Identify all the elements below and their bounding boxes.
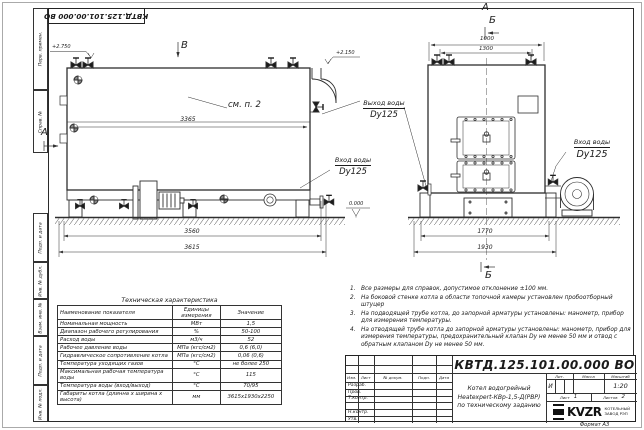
cell-units: °С xyxy=(173,382,221,390)
dim-3615: 3615 xyxy=(184,244,199,251)
view-label-b-bottom: Б xyxy=(485,270,492,281)
header-units: Единицы измерения xyxy=(173,306,221,320)
outlet-water-dn: Dy125 xyxy=(352,110,416,120)
margin-box-inv-podl: Инв. № подл. xyxy=(33,385,48,422)
header-name: Наименование показателя xyxy=(58,306,173,320)
cell-units: % xyxy=(173,328,221,336)
note-text: Все размеры для справок, допустимое откл… xyxy=(361,286,632,294)
sheets-cell: Листов 2 xyxy=(591,393,637,401)
outlet-water-label: Выход воды Dy125 xyxy=(352,90,416,120)
cell-value: 3615х1930х2250 xyxy=(220,390,281,404)
col-podp: Подп. xyxy=(412,373,436,382)
product-description: Котел водогрейный Heatexpert-КВр-1,5-Д(Р… xyxy=(452,373,546,423)
cell-name: Температура воды (вход/выход) xyxy=(58,382,173,390)
outlet-water-text: Выход воды xyxy=(363,99,404,109)
dim-3560: 3560 xyxy=(184,228,199,235)
cell-value: 0,06 (0,6) xyxy=(220,352,281,360)
margin-label: Взам. инв. № xyxy=(38,302,43,333)
dim-1300: 1300 xyxy=(479,46,493,52)
margin-box-inv-dubl: Инв. № дубл. xyxy=(33,262,48,299)
spec-table-title: Техническая характеристика xyxy=(57,297,282,304)
mass-label: Масса xyxy=(573,373,604,379)
margin-box-vzam-inv: Взам. инв. № xyxy=(33,299,48,336)
cell-name: Габариты котла (длинна х ширина х высота… xyxy=(58,390,173,404)
spec-table-block: Техническая характеристика Наименование … xyxy=(57,297,282,405)
scale-value: 1:20 xyxy=(604,379,637,393)
table-row: Гидравлическое сопротивление котлаМПа (к… xyxy=(58,352,282,360)
cell-value: 0,6 (6,0) xyxy=(220,344,281,352)
elevation-2750: +2.750 xyxy=(52,44,71,50)
cell-value: 52 xyxy=(220,336,281,344)
table-row: Температура воды (вход/выход)°С70/95 xyxy=(58,382,282,390)
role-prov: Пров. xyxy=(346,389,412,396)
table-row: Диапазон рабочего регулирования%50-100 xyxy=(58,328,282,336)
note-item: 4.На отводящей трубе котла до запорной а… xyxy=(350,327,632,350)
inlet-water-text: Вход воды xyxy=(574,138,610,148)
table-row: Максимальная рабочая температура воды°С1… xyxy=(58,368,282,382)
margin-box-podp-data-2: Подп. и дата xyxy=(33,336,48,385)
cell-units: МПа (кгс/см2) xyxy=(173,344,221,352)
cell-units: °С xyxy=(173,360,221,368)
elevation-2150: +2.150 xyxy=(336,50,355,56)
table-row: Габариты котла (длинна х ширина х высота… xyxy=(58,390,282,404)
note-item: 1.Все размеры для справок, допустимое от… xyxy=(350,286,632,294)
inlet-water-dn: Dy125 xyxy=(324,167,382,177)
cell-units: мм xyxy=(173,390,221,404)
doc-number-stamp: КВТД.125.101.00.000 ВО xyxy=(48,8,145,24)
lit-value: И xyxy=(546,379,555,393)
view-label-b-top: Б xyxy=(489,15,496,26)
zero-level: 0.000 xyxy=(349,201,363,207)
cell-name: Диапазон рабочего регулирования xyxy=(58,328,173,336)
factory-name: КОТЕЛЬНЫЙ ЗАВОД РЭП xyxy=(605,407,631,416)
factory-line2: ЗАВОД РЭП xyxy=(605,412,631,417)
note-item: 3.На подводящей трубе котла, до запорной… xyxy=(350,311,632,326)
margin-label: Инв. № дубл. xyxy=(38,265,43,296)
kvzr-logo-text: KVZR xyxy=(567,405,602,419)
role-nkontr: Н.контр. xyxy=(346,409,412,416)
note-number: 4. xyxy=(350,327,361,350)
cell-name: Гидравлическое сопротивление котла xyxy=(58,352,173,360)
table-row: Рабочее давление водыМПа (кгс/см2)0,6 (6… xyxy=(58,344,282,352)
role-razrab: Разраб. xyxy=(346,382,412,389)
table-header-row: Наименование показателя Единицы измерени… xyxy=(58,306,282,320)
col-list: Лист xyxy=(358,373,375,382)
company-logo-cell: KVZR КОТЕЛЬНЫЙ ЗАВОД РЭП xyxy=(546,401,637,423)
table-row: Номинальная мощностьМВт1,5 xyxy=(58,320,282,328)
note-text: На подводящей трубе котла, до запорной а… xyxy=(361,311,632,326)
sheets-label: Листов xyxy=(603,395,618,400)
spec-table: Наименование показателя Единицы измерени… xyxy=(57,305,282,405)
cell-value: 1,5 xyxy=(220,320,281,328)
doc-number-stamp-text: КВТД.125.101.00.000 ВО xyxy=(44,12,148,21)
cell-units: °С xyxy=(173,368,221,382)
margin-label: Перв. примен. xyxy=(38,32,43,67)
role-blank xyxy=(346,402,412,409)
note-number: 3. xyxy=(350,311,361,326)
margin-label: Инв. № подл. xyxy=(38,388,43,420)
dim-1770: 1770 xyxy=(477,228,492,235)
kvzr-logo-icon xyxy=(553,404,564,420)
cell-name: Расход воды xyxy=(58,336,173,344)
sheet-label: Лист xyxy=(560,395,570,400)
role-utv: Утв. xyxy=(346,416,412,423)
margin-label: Подп. и дата xyxy=(38,222,43,253)
title-block: КВТД.125.101.00.000 ВО Изм. Лист № докум… xyxy=(345,355,636,422)
view-label-v: В xyxy=(181,40,188,51)
header-value: Значение xyxy=(220,306,281,320)
cell-units: м3/ч xyxy=(173,336,221,344)
margin-box-podp-data-1: Подп. и дата xyxy=(33,213,48,262)
cell-units: МВт xyxy=(173,320,221,328)
sheet-cell: Лист 1 xyxy=(546,393,591,401)
format-label: Формат А3 xyxy=(553,422,636,428)
product-line1: Котел водогрейный xyxy=(468,385,531,394)
titleblock-doc-number: КВТД.125.101.00.000 ВО xyxy=(452,356,637,373)
dim-1000: 1000 xyxy=(480,36,494,42)
inlet-water-label-left: Вход воды Dy125 xyxy=(324,147,382,177)
margin-box-sprav: Справ. № xyxy=(33,90,48,153)
note-reference: см. п. 2 xyxy=(228,100,261,110)
product-line3: по техническому заданию xyxy=(457,402,540,411)
col-dokum: № докум. xyxy=(374,373,412,382)
cell-value: не более 250 xyxy=(220,360,281,368)
drawing-sheet: { "doc_number": "КВТД.125.101.00.000 ВО"… xyxy=(0,0,644,430)
note-number: 1. xyxy=(350,286,361,294)
col-izm: Изм. xyxy=(346,373,358,382)
table-row: Расход водым3/ч52 xyxy=(58,336,282,344)
cell-value: 115 xyxy=(220,368,281,382)
note-number: 2. xyxy=(350,295,361,310)
dim-3365: 3365 xyxy=(180,116,195,123)
margin-label: Подп. и дата xyxy=(38,345,43,376)
cell-name: Температура уходящих газов xyxy=(58,360,173,368)
dim-1930: 1930 xyxy=(477,244,492,251)
cell-name: Рабочее давление воды xyxy=(58,344,173,352)
inlet-water-label-right: Вход воды Dy125 xyxy=(560,129,624,160)
cell-value: 70/95 xyxy=(220,382,281,390)
note-text: На отводящей трубе котла до запорной арм… xyxy=(361,327,632,350)
role-tkontr: Т.контр. xyxy=(346,396,412,403)
sheet-number: 1 xyxy=(574,394,578,400)
cell-value: 50-100 xyxy=(220,328,281,336)
note-text: На боковой стенке котла в области топочн… xyxy=(361,295,632,310)
view-label-a-left: А xyxy=(41,127,48,138)
sheets-total: 2 xyxy=(622,394,626,400)
cell-name: Номинальная мощность xyxy=(58,320,173,328)
col-data: Дата xyxy=(436,373,452,382)
inlet-water-text: Вход воды xyxy=(335,156,371,166)
product-line2: Heatexpert-КВр-1,5-Д(РВР) xyxy=(458,394,541,403)
notes-list: 1.Все размеры для справок, допустимое от… xyxy=(350,286,632,350)
cell-units: МПа (кгс/см2) xyxy=(173,352,221,360)
cell-name: Максимальная рабочая температура воды xyxy=(58,368,173,382)
table-row: Температура уходящих газов°Сне более 250 xyxy=(58,360,282,368)
inlet-water-dn: Dy125 xyxy=(560,149,624,160)
note-item: 2.На боковой стенке котла в области топо… xyxy=(350,295,632,310)
view-label-a-top: А xyxy=(482,2,489,13)
